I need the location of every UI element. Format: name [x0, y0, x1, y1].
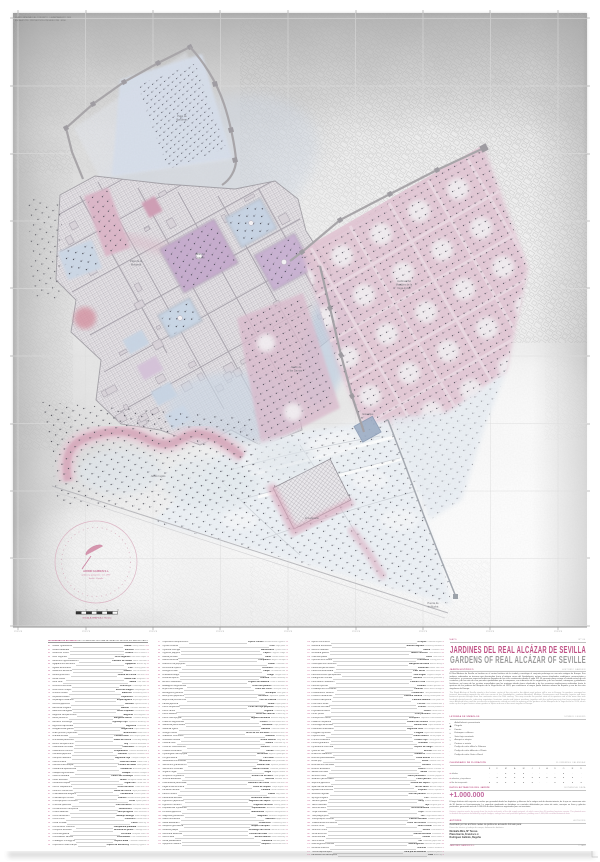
svg-text:37°23'18"N: 37°23'18"N [284, 631, 293, 633]
svg-text:37°23'14"N: 37°23'14"N [149, 631, 158, 633]
svg-text:37°23'10"N: 37°23'10"N [14, 631, 23, 633]
svg-text:37°23'22"N: 37°23'22"N [419, 631, 428, 633]
svg-text:37°23'16"N: 37°23'16"N [216, 631, 225, 633]
svg-text:37°23'12"N: 37°23'12"N [82, 631, 91, 633]
svg-text:37°23'20"N: 37°23'20"N [352, 631, 361, 633]
